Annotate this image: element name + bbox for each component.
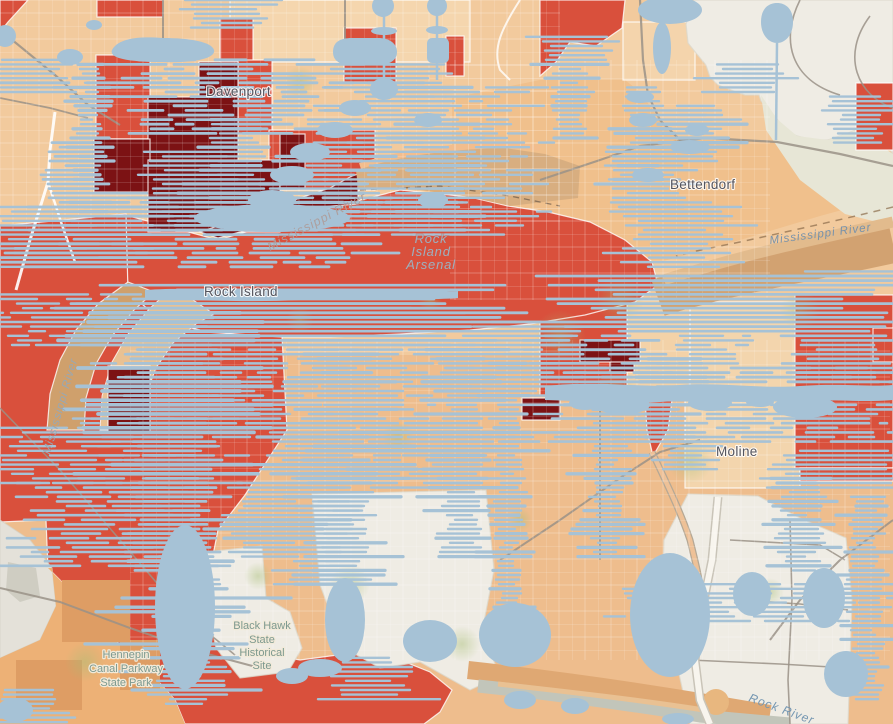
svg-text:Site: Site xyxy=(253,660,272,672)
svg-text:State: State xyxy=(249,634,275,646)
svg-text:Rock Island: Rock Island xyxy=(204,284,278,299)
svg-text:Moline: Moline xyxy=(716,444,758,459)
svg-text:Bettendorf: Bettendorf xyxy=(670,177,735,192)
svg-text:Hennepin: Hennepin xyxy=(102,649,149,661)
svg-text:Arsenal: Arsenal xyxy=(405,257,456,272)
svg-text:Davenport: Davenport xyxy=(206,84,271,99)
svg-text:State Park: State Park xyxy=(100,677,152,689)
svg-text:Canal Parkway: Canal Parkway xyxy=(89,663,163,675)
svg-text:Historical: Historical xyxy=(239,647,284,659)
svg-text:Black Hawk: Black Hawk xyxy=(233,620,291,632)
